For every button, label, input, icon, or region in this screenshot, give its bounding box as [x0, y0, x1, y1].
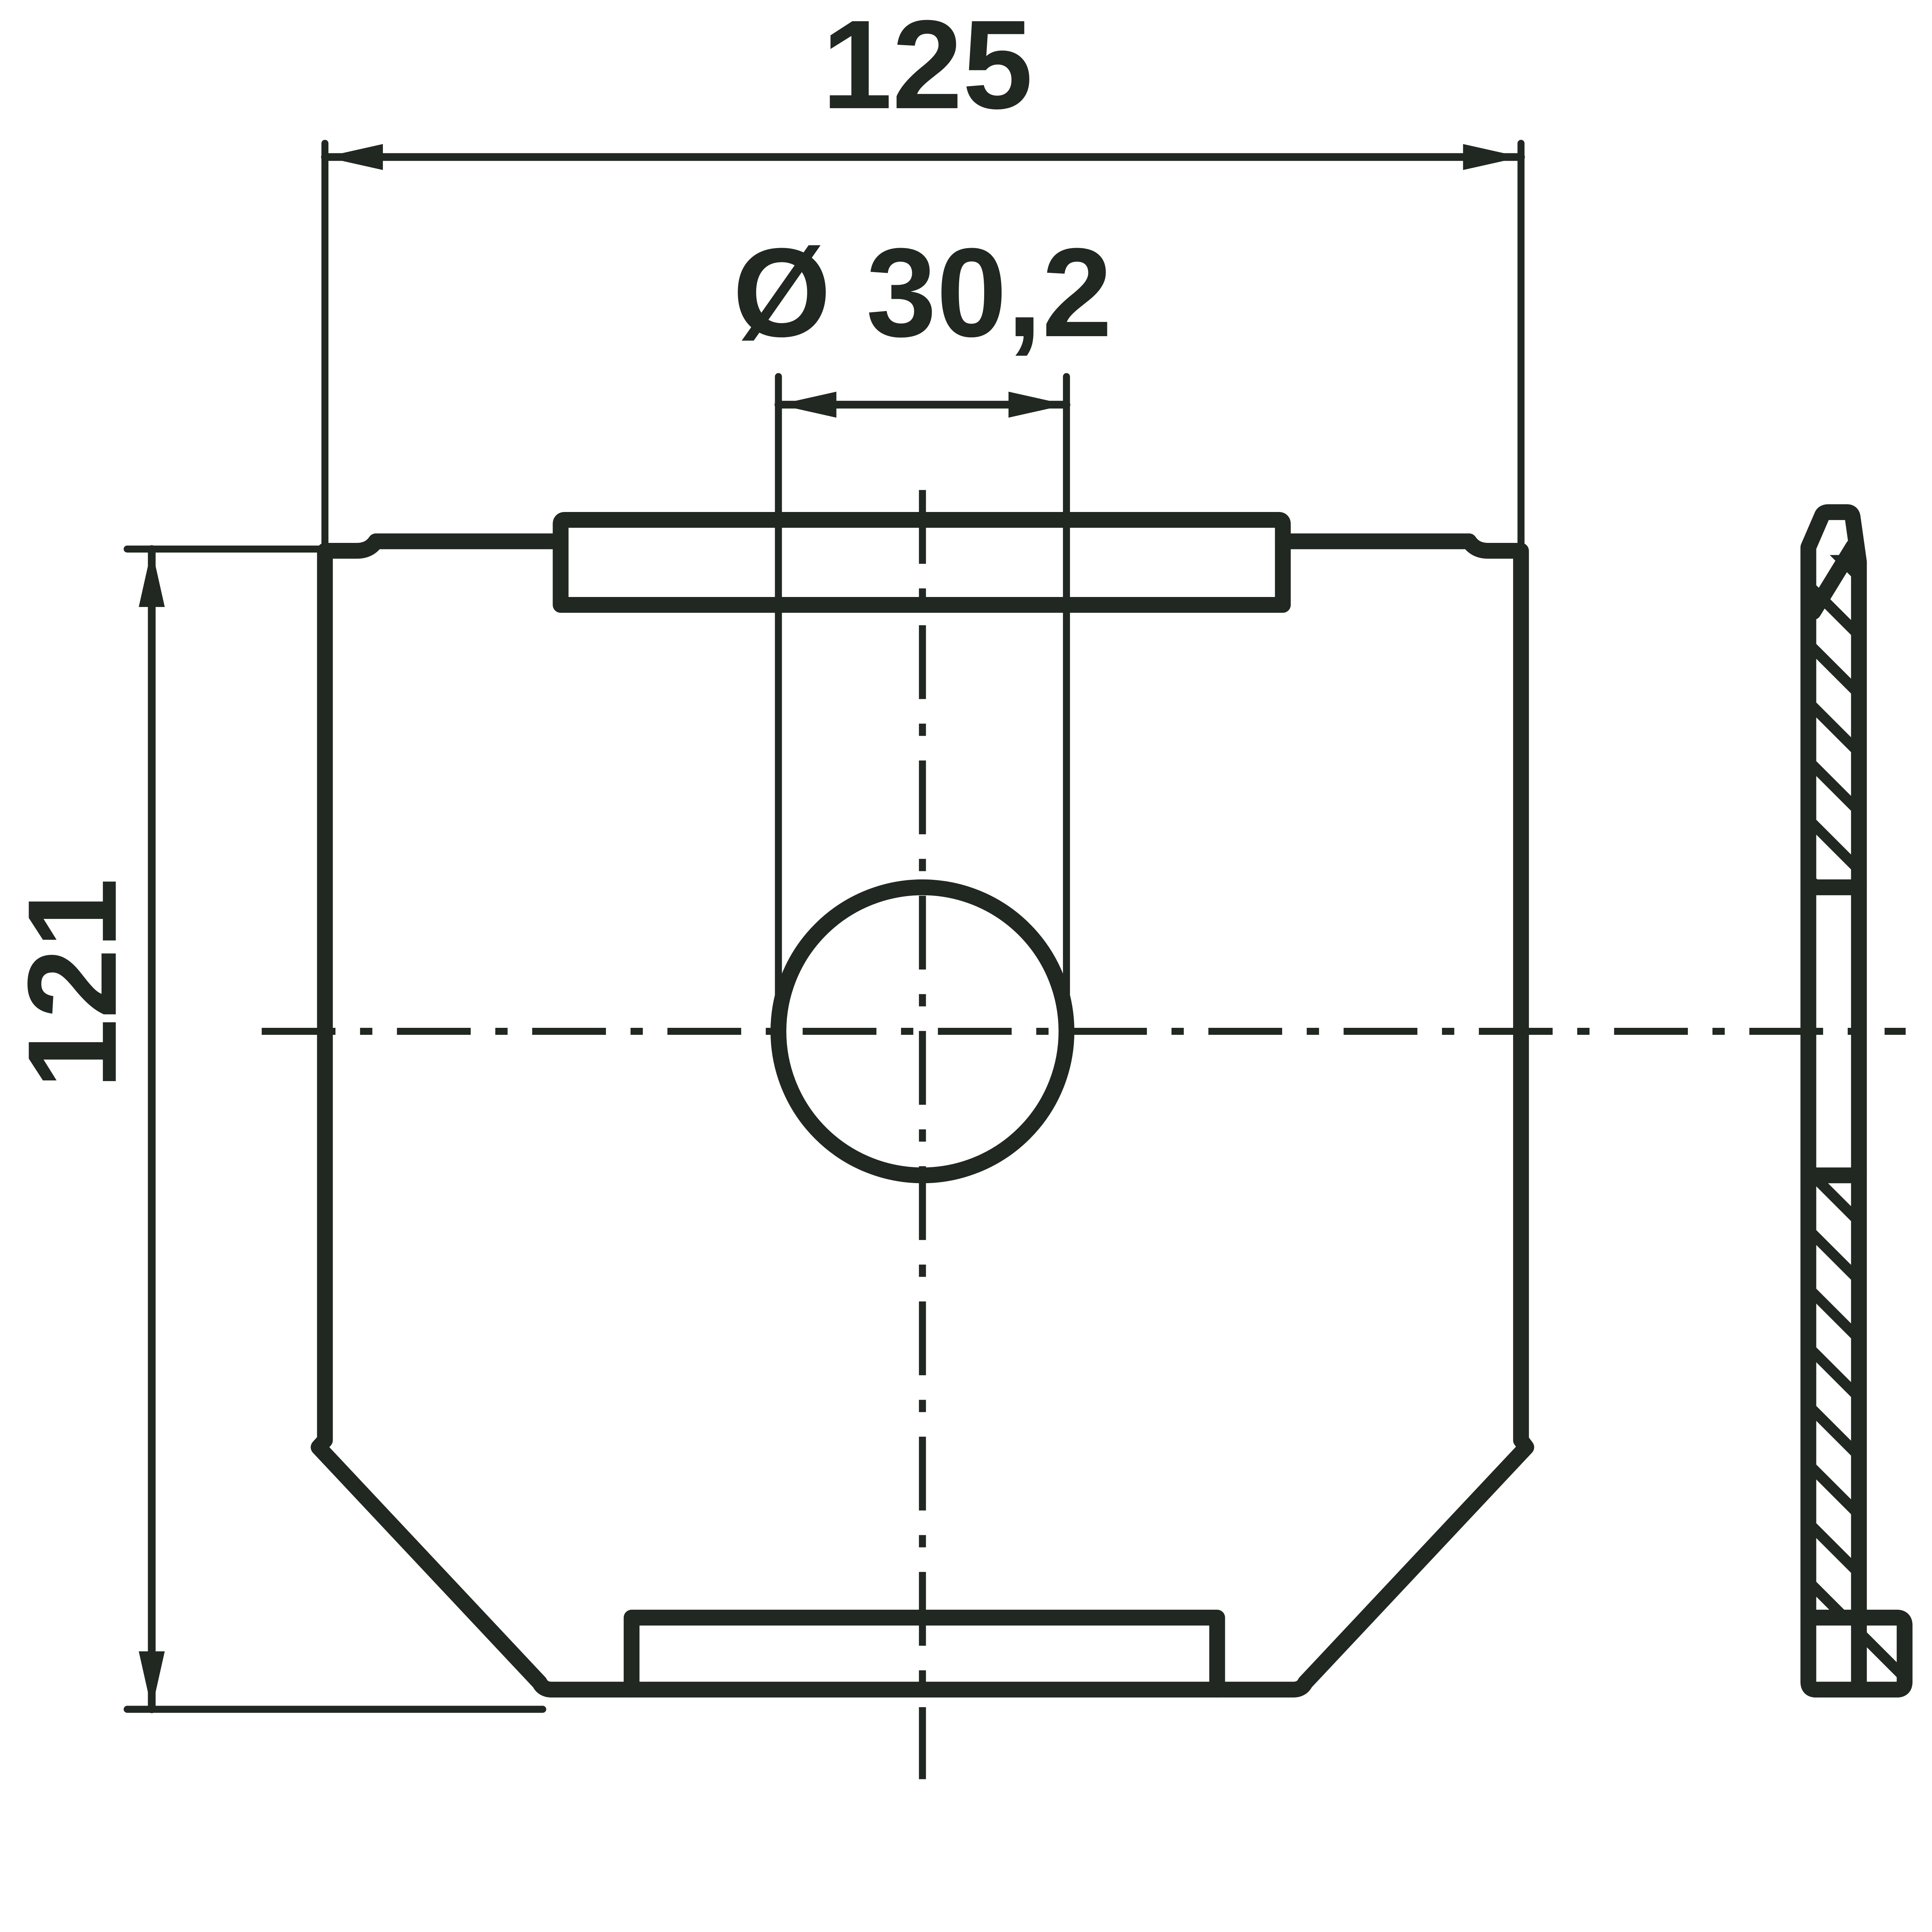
dim-width-arrow-right [1463, 144, 1521, 170]
dim-height-arrow-bottom [139, 1651, 165, 1709]
section-hatch-lower [1815, 1183, 1852, 1610]
front-view [262, 490, 1906, 1779]
dim-height-arrow-top [139, 549, 165, 607]
section-hatch-foot [1866, 1625, 1897, 1682]
technical-drawing-page: 125 Ø 30,2 121 5 [0, 0, 1932, 1932]
technical-drawing-canvas: 125 Ø 30,2 121 5 [0, 0, 1932, 1932]
dimension-height: 121 [2, 549, 543, 1709]
dim-hole-arrow-right [1009, 392, 1066, 418]
dim-height-label: 121 [2, 878, 143, 1089]
side-view [1808, 512, 1905, 1689]
dim-width-label: 125 [822, 0, 1033, 135]
dim-hole-arrow-left [779, 392, 837, 418]
dim-hole-label: Ø 30,2 [733, 222, 1112, 363]
dim-width-arrow-left [325, 144, 383, 170]
